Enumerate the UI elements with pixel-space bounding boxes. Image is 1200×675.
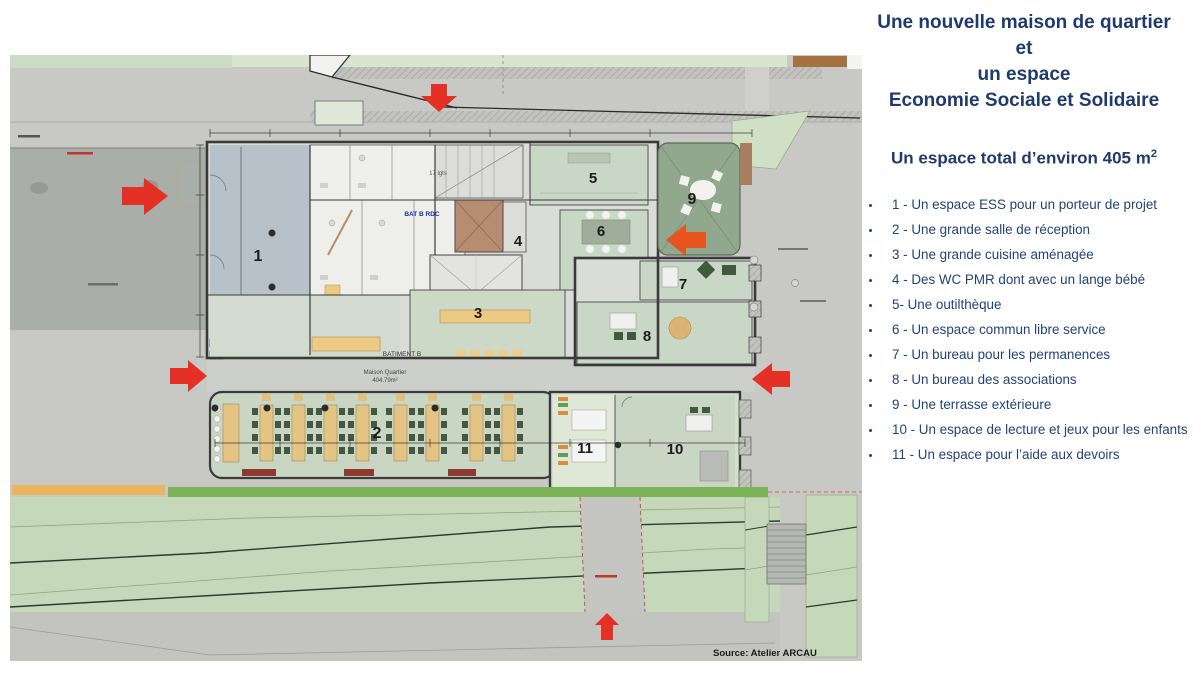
list-item-6: 6 - Un espace commun libre service <box>882 322 1192 338</box>
room-label-8: 8 <box>643 328 651 345</box>
area-label: 404.79m² <box>372 378 397 384</box>
room-label-9: 9 <box>688 191 697 208</box>
space-list: 1 - Un espace ESS pour un porteur de pro… <box>862 197 1192 463</box>
list-item-5: 5- Une outilthèque <box>882 297 1192 313</box>
red-annotation <box>595 575 617 578</box>
room-7-bureau-permanences <box>575 258 755 300</box>
list-item-1: 1 - Un espace ESS pour un porteur de pro… <box>882 197 1192 213</box>
list-item-2: 2 - Une grande salle de réception <box>882 222 1192 238</box>
list-item-11: 11 - Un espace pour l’aide aux devoirs <box>882 447 1192 463</box>
title-line-4: Economie Sociale et Solidaire <box>856 88 1192 114</box>
left-courtyard <box>10 135 207 330</box>
room-label-11: 11 <box>577 440 593 457</box>
floor-plan: 1 2 3 4 5 6 7 8 9 10 11 BATIMENT B Maiso… <box>10 55 862 661</box>
list-item-7: 7 - Un bureau pour les permanences <box>882 347 1192 363</box>
title-line-2: et <box>856 36 1192 62</box>
source-credit: Source: Atelier ARCAU <box>713 648 817 659</box>
bat-b-rdc-label: BAT B RDC <box>404 211 440 218</box>
subtitle-text: Un espace total d’environ 405 m <box>891 149 1151 168</box>
garden-path <box>580 497 645 612</box>
room-label-6: 6 <box>597 223 605 240</box>
garden <box>10 485 857 661</box>
slide: 1 2 3 4 5 6 7 8 9 10 11 BATIMENT B Maiso… <box>0 0 1200 675</box>
total-area-subtitle: Un espace total d’environ 405 m2 <box>856 148 1192 169</box>
room-3-cuisine <box>210 290 565 358</box>
room-label-7: 7 <box>679 276 687 293</box>
lgts-label: 17 lgts <box>429 171 447 177</box>
room-label-2: 2 <box>373 425 382 442</box>
room-label-4: 4 <box>514 233 523 250</box>
title-line-1: Une nouvelle maison de quartier <box>856 10 1192 36</box>
list-item-9: 9 - Une terrasse extérieure <box>882 397 1192 413</box>
slide-title: Une nouvelle maison de quartier et un es… <box>856 10 1192 114</box>
room-2-salle-reception <box>210 392 555 478</box>
room-label-3: 3 <box>474 305 482 322</box>
list-item-8: 8 - Un bureau des associations <box>882 372 1192 388</box>
list-item-10: 10 - Un espace de lecture et jeux pour l… <box>882 422 1192 438</box>
info-panel: Une nouvelle maison de quartier et un es… <box>856 0 1192 472</box>
room-label-5: 5 <box>589 170 597 187</box>
maison-quartier-label: Maison Quartier <box>364 370 407 376</box>
title-line-3: un espace <box>856 62 1192 88</box>
subtitle-superscript: 2 <box>1151 148 1157 160</box>
room-label-1: 1 <box>254 248 263 265</box>
room-8-bureau-associations <box>577 302 752 364</box>
list-item-3: 3 - Une grande cuisine aménagée <box>882 247 1192 263</box>
batiment-b-label: BATIMENT B <box>383 351 421 358</box>
list-item-4: 4 - Des WC PMR dont avec un lange bébé <box>882 272 1192 288</box>
room-label-10: 10 <box>667 441 684 458</box>
exterior-stair <box>767 524 806 584</box>
floor-plan-drawing: 1 2 3 4 5 6 7 8 9 10 11 BATIMENT B Maiso… <box>10 55 862 661</box>
